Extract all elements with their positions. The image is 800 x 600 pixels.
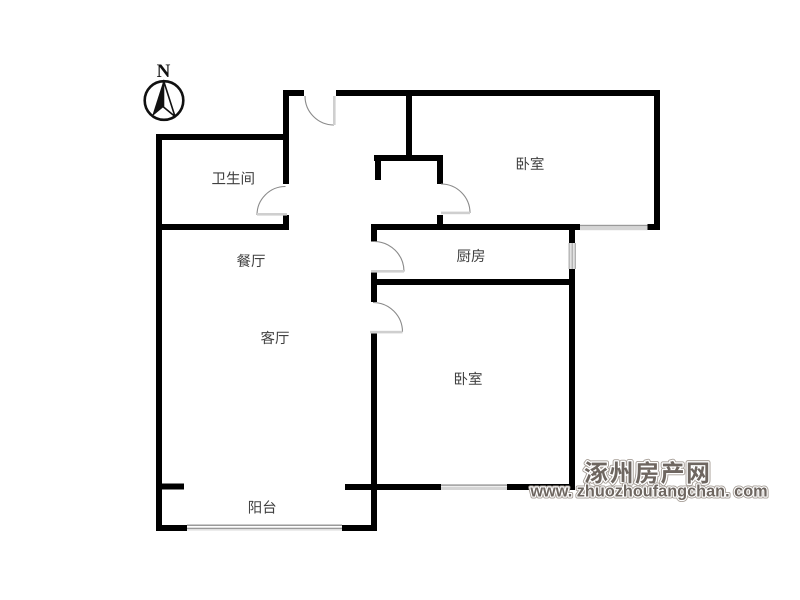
- svg-text:N: N: [157, 61, 171, 82]
- svg-text:www. zhuozhoufangchan. com: www. zhuozhoufangchan. com: [529, 483, 767, 501]
